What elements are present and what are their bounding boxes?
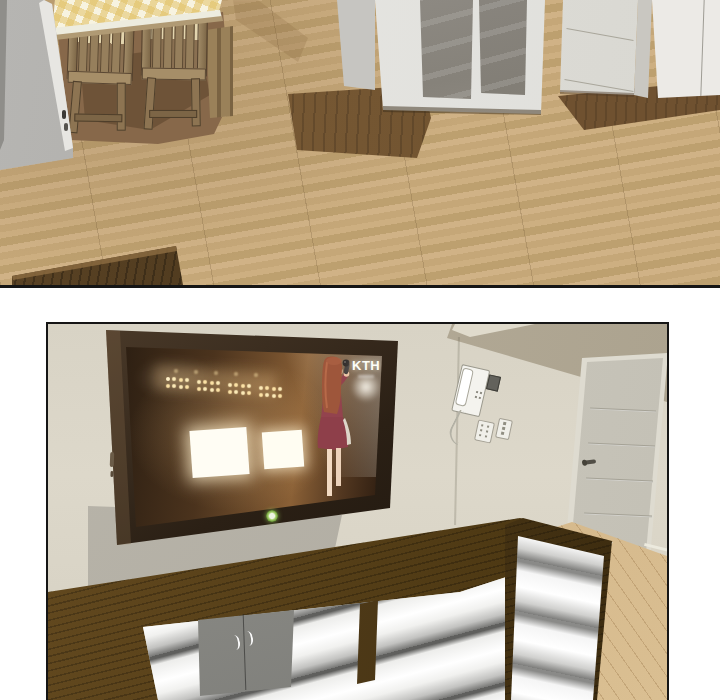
door-handle-plate	[64, 123, 68, 131]
light-switch-plate	[495, 418, 513, 440]
intercom-unit	[440, 364, 505, 471]
door-handle	[62, 110, 66, 119]
intercom-cord	[445, 409, 472, 445]
comic-page: KTH	[0, 0, 720, 700]
panel-living-room-tv: KTH	[46, 322, 669, 700]
chair-leg	[68, 81, 81, 134]
chair-leg	[191, 78, 201, 126]
tv-side-buttons	[110, 452, 115, 467]
intercom-screen	[486, 374, 501, 391]
chair-stretcher	[74, 113, 122, 122]
light-switch-plate	[474, 419, 495, 443]
tv-power-led	[266, 510, 278, 522]
chair-stretcher	[149, 110, 197, 118]
panel-dining-overhead	[0, 0, 720, 288]
chair-leg	[117, 83, 126, 131]
chair-leg	[144, 77, 157, 130]
